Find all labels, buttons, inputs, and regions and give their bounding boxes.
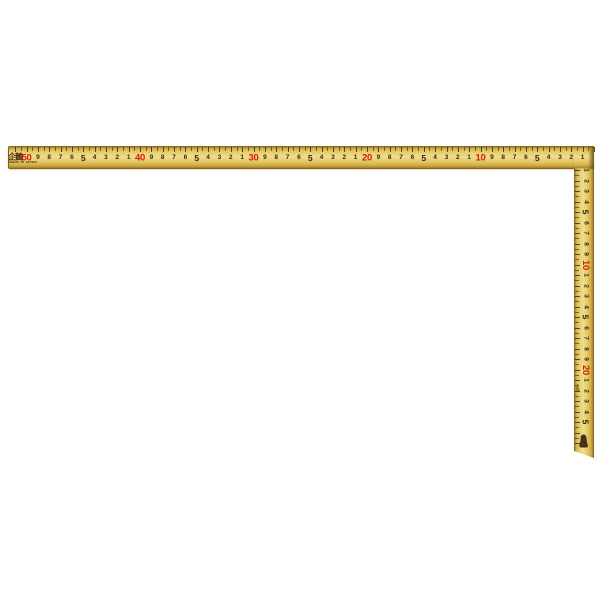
scale-number: 1 <box>467 154 471 161</box>
cm-tick <box>575 296 580 297</box>
half-cm-tick <box>575 406 579 407</box>
cm-tick <box>575 170 580 171</box>
scale-number: 9 <box>150 154 154 161</box>
cm-tick <box>83 147 84 152</box>
scale-number: 1 <box>581 273 588 277</box>
half-cm-tick <box>32 147 33 151</box>
cm-tick <box>575 244 580 245</box>
scale-number: 5 <box>580 210 589 215</box>
scale-number-ten: 10 <box>476 153 486 163</box>
scale-number: 5 <box>535 153 540 162</box>
scale-number: 2 <box>569 154 573 161</box>
product-photo-carpenter-square: 1234567891012345678920123456789301234567… <box>0 0 600 600</box>
cm-tick <box>575 359 580 360</box>
scale-number: 3 <box>445 154 449 161</box>
half-cm-tick <box>575 364 579 365</box>
cm-tick <box>185 147 186 152</box>
cm-tick <box>503 147 504 152</box>
cm-tick <box>575 223 580 224</box>
scale-number: 6 <box>581 326 588 330</box>
cm-tick <box>575 202 580 203</box>
scale-number: 5 <box>81 153 86 162</box>
cm-tick <box>575 307 580 308</box>
half-cm-tick <box>577 147 578 151</box>
cm-tick <box>72 147 73 152</box>
scale-number: 8 <box>581 242 588 246</box>
scale-number: 7 <box>172 154 176 161</box>
half-cm-tick <box>575 186 579 187</box>
scale-number: 4 <box>581 410 588 414</box>
scale-number: 8 <box>161 154 165 161</box>
half-cm-tick <box>575 238 579 239</box>
cm-tick <box>174 147 175 152</box>
cm-tick <box>95 147 96 152</box>
cm-tick <box>424 147 425 152</box>
half-cm-tick <box>575 396 579 397</box>
scale-number: 8 <box>274 154 278 161</box>
scale-number: 8 <box>501 154 505 161</box>
half-cm-tick <box>575 196 579 197</box>
scale-number: 2 <box>342 154 346 161</box>
scale-number: 4 <box>93 154 97 161</box>
cm-tick <box>575 328 580 329</box>
scale-number-ten: 20 <box>580 365 590 375</box>
cm-tick <box>242 147 243 152</box>
scale-number: 9 <box>263 154 267 161</box>
scale-number: 2 <box>115 154 119 161</box>
scale-number: 4 <box>433 154 437 161</box>
scale-number-ten: 40 <box>135 153 145 163</box>
scale-number: 4 <box>320 154 324 161</box>
scale-number: 9 <box>490 154 494 161</box>
cm-tick <box>575 349 580 350</box>
half-cm-tick <box>395 147 396 151</box>
half-cm-tick <box>157 147 158 151</box>
scale-number: 1 <box>354 154 358 161</box>
half-cm-tick <box>100 147 101 151</box>
scale-number: 3 <box>218 154 222 161</box>
scale-number: 6 <box>184 154 188 161</box>
scale-number: 3 <box>581 189 588 193</box>
half-cm-tick <box>475 147 476 151</box>
half-cm-tick <box>282 147 283 151</box>
scale-number: 6 <box>70 154 74 161</box>
half-cm-tick <box>575 354 579 355</box>
half-cm-tick <box>305 147 306 151</box>
half-cm-tick <box>575 343 579 344</box>
cm-tick <box>435 147 436 152</box>
made-in-japan-text: MADE IN JAPAN <box>9 161 37 164</box>
cm-tick <box>344 147 345 152</box>
half-cm-tick <box>520 147 521 151</box>
cm-tick <box>208 147 209 152</box>
cm-tick <box>117 147 118 152</box>
scale-number: 4 <box>206 154 210 161</box>
cm-tick <box>575 233 580 234</box>
half-cm-tick <box>316 147 317 151</box>
scale-number: 1 <box>581 378 588 382</box>
scale-number: 2 <box>581 284 588 288</box>
half-cm-tick <box>575 207 579 208</box>
scale-number: 3 <box>558 154 562 161</box>
scale-number: 9 <box>36 154 40 161</box>
cm-tick <box>575 412 580 413</box>
cm-tick <box>537 147 538 152</box>
scale-number: 6 <box>524 154 528 161</box>
scale-number: 9 <box>581 252 588 256</box>
cm-tick <box>151 147 152 152</box>
cm-tick <box>378 147 379 152</box>
half-cm-tick <box>361 147 362 151</box>
penguin-logo-icon <box>577 433 590 449</box>
side-brand-text: 企鵝 <box>575 384 579 392</box>
cm-tick <box>299 147 300 152</box>
half-cm-tick <box>575 259 579 260</box>
cm-tick <box>560 147 561 152</box>
scale-number: 3 <box>331 154 335 161</box>
half-cm-tick <box>566 147 567 151</box>
cm-tick <box>356 147 357 152</box>
scale-number: 5 <box>580 315 589 320</box>
half-cm-tick <box>498 147 499 151</box>
half-cm-tick <box>123 147 124 151</box>
half-cm-tick <box>575 228 579 229</box>
half-cm-tick <box>575 417 579 418</box>
scale-number: 5 <box>580 420 589 425</box>
cm-tick <box>197 147 198 152</box>
cm-tick <box>575 212 580 213</box>
half-cm-tick <box>78 147 79 151</box>
half-cm-tick <box>44 147 45 151</box>
half-cm-tick <box>575 280 579 281</box>
half-cm-tick <box>191 147 192 151</box>
scale-number: 8 <box>581 347 588 351</box>
cm-tick <box>515 147 516 152</box>
scale-number: 7 <box>581 336 588 340</box>
cm-tick <box>412 147 413 152</box>
half-cm-tick <box>21 147 22 151</box>
scale-number: 1 <box>581 154 585 161</box>
cm-tick <box>447 147 448 152</box>
scale-number: 5 <box>421 153 426 162</box>
cm-tick <box>492 147 493 152</box>
scale-number: 8 <box>47 154 51 161</box>
cm-tick <box>571 147 572 152</box>
half-cm-tick <box>168 147 169 151</box>
cm-tick <box>575 401 580 402</box>
half-cm-tick <box>202 147 203 151</box>
half-cm-tick <box>575 322 579 323</box>
half-cm-tick <box>214 147 215 151</box>
cm-tick <box>575 422 580 423</box>
cm-tick <box>265 147 266 152</box>
half-cm-tick <box>588 147 589 151</box>
half-cm-tick <box>134 147 135 151</box>
cm-tick <box>575 254 580 255</box>
half-cm-tick <box>452 147 453 151</box>
half-cm-tick <box>575 427 579 428</box>
half-cm-tick <box>575 301 579 302</box>
scale-number: 7 <box>513 154 517 161</box>
cm-tick <box>129 147 130 152</box>
half-cm-tick <box>339 147 340 151</box>
half-cm-tick <box>407 147 408 151</box>
half-cm-tick <box>146 147 147 151</box>
scale-number: 2 <box>581 389 588 393</box>
scale-number: 3 <box>581 294 588 298</box>
cm-tick <box>575 181 580 182</box>
scale-number: 7 <box>59 154 63 161</box>
cm-tick <box>458 147 459 152</box>
scale-number: 7 <box>286 154 290 161</box>
scale-number: 2 <box>456 154 460 161</box>
scale-number: 9 <box>581 357 588 361</box>
cm-tick <box>231 147 232 152</box>
cm-tick <box>594 147 595 152</box>
cm-tick <box>526 147 527 152</box>
scale-number: 4 <box>547 154 551 161</box>
half-cm-tick <box>384 147 385 151</box>
cm-tick <box>575 275 580 276</box>
scale-number: 3 <box>104 154 108 161</box>
cm-tick <box>49 147 50 152</box>
cm-tick <box>549 147 550 152</box>
half-cm-tick <box>66 147 67 151</box>
half-cm-tick <box>327 147 328 151</box>
half-cm-tick <box>441 147 442 151</box>
cm-tick <box>575 317 580 318</box>
scale-number: 8 <box>388 154 392 161</box>
half-cm-tick <box>575 249 579 250</box>
cm-tick <box>575 380 580 381</box>
half-cm-tick <box>575 291 579 292</box>
scale-number: 6 <box>411 154 415 161</box>
half-cm-tick <box>180 147 181 151</box>
cm-tick <box>276 147 277 152</box>
cm-tick <box>61 147 62 152</box>
cm-tick <box>322 147 323 152</box>
cm-tick <box>163 147 164 152</box>
half-cm-tick <box>418 147 419 151</box>
cm-tick <box>333 147 334 152</box>
half-cm-tick <box>575 175 579 176</box>
half-cm-tick <box>259 147 260 151</box>
half-cm-tick <box>55 147 56 151</box>
scale-number-ten: 10 <box>580 260 590 270</box>
scale-number: 6 <box>581 221 588 225</box>
half-cm-tick <box>464 147 465 151</box>
half-cm-tick <box>350 147 351 151</box>
cm-tick <box>390 147 391 152</box>
half-cm-tick <box>293 147 294 151</box>
cm-tick <box>288 147 289 152</box>
scale-number: 1 <box>240 154 244 161</box>
scale-number: 4 <box>581 305 588 309</box>
scale-number: 7 <box>581 231 588 235</box>
half-cm-tick <box>271 147 272 151</box>
scale-number-ten: 30 <box>249 153 259 163</box>
cm-tick <box>469 147 470 152</box>
cm-tick <box>401 147 402 152</box>
scale-number: 3 <box>581 399 588 403</box>
half-cm-tick <box>543 147 544 151</box>
half-cm-tick <box>429 147 430 151</box>
cm-tick <box>106 147 107 152</box>
scale-number: 4 <box>581 200 588 204</box>
scale-number: 9 <box>377 154 381 161</box>
cm-tick <box>219 147 220 152</box>
half-cm-tick <box>373 147 374 151</box>
scale-number: 2 <box>229 154 233 161</box>
half-cm-tick <box>509 147 510 151</box>
cm-tick <box>575 286 580 287</box>
half-cm-tick <box>248 147 249 151</box>
half-cm-tick <box>486 147 487 151</box>
half-cm-tick <box>575 270 579 271</box>
half-cm-tick <box>575 333 579 334</box>
half-cm-tick <box>225 147 226 151</box>
scale-number: 1 <box>581 168 588 172</box>
cm-tick <box>575 338 580 339</box>
scale-number: 1 <box>127 154 131 161</box>
scale-number: 2 <box>581 179 588 183</box>
scale-number: 6 <box>297 154 301 161</box>
half-cm-tick <box>575 375 579 376</box>
half-cm-tick <box>532 147 533 151</box>
cm-tick <box>38 147 39 152</box>
half-cm-tick <box>575 312 579 313</box>
half-cm-tick <box>89 147 90 151</box>
half-cm-tick <box>112 147 113 151</box>
half-cm-tick <box>237 147 238 151</box>
scale-number: 5 <box>308 153 313 162</box>
cm-tick <box>575 191 580 192</box>
half-cm-tick <box>554 147 555 151</box>
cm-tick <box>583 147 584 152</box>
cm-tick <box>310 147 311 152</box>
scale-number: 5 <box>194 153 199 162</box>
half-cm-tick <box>575 217 579 218</box>
scale-number-ten: 20 <box>362 153 372 163</box>
scale-number: 7 <box>399 154 403 161</box>
